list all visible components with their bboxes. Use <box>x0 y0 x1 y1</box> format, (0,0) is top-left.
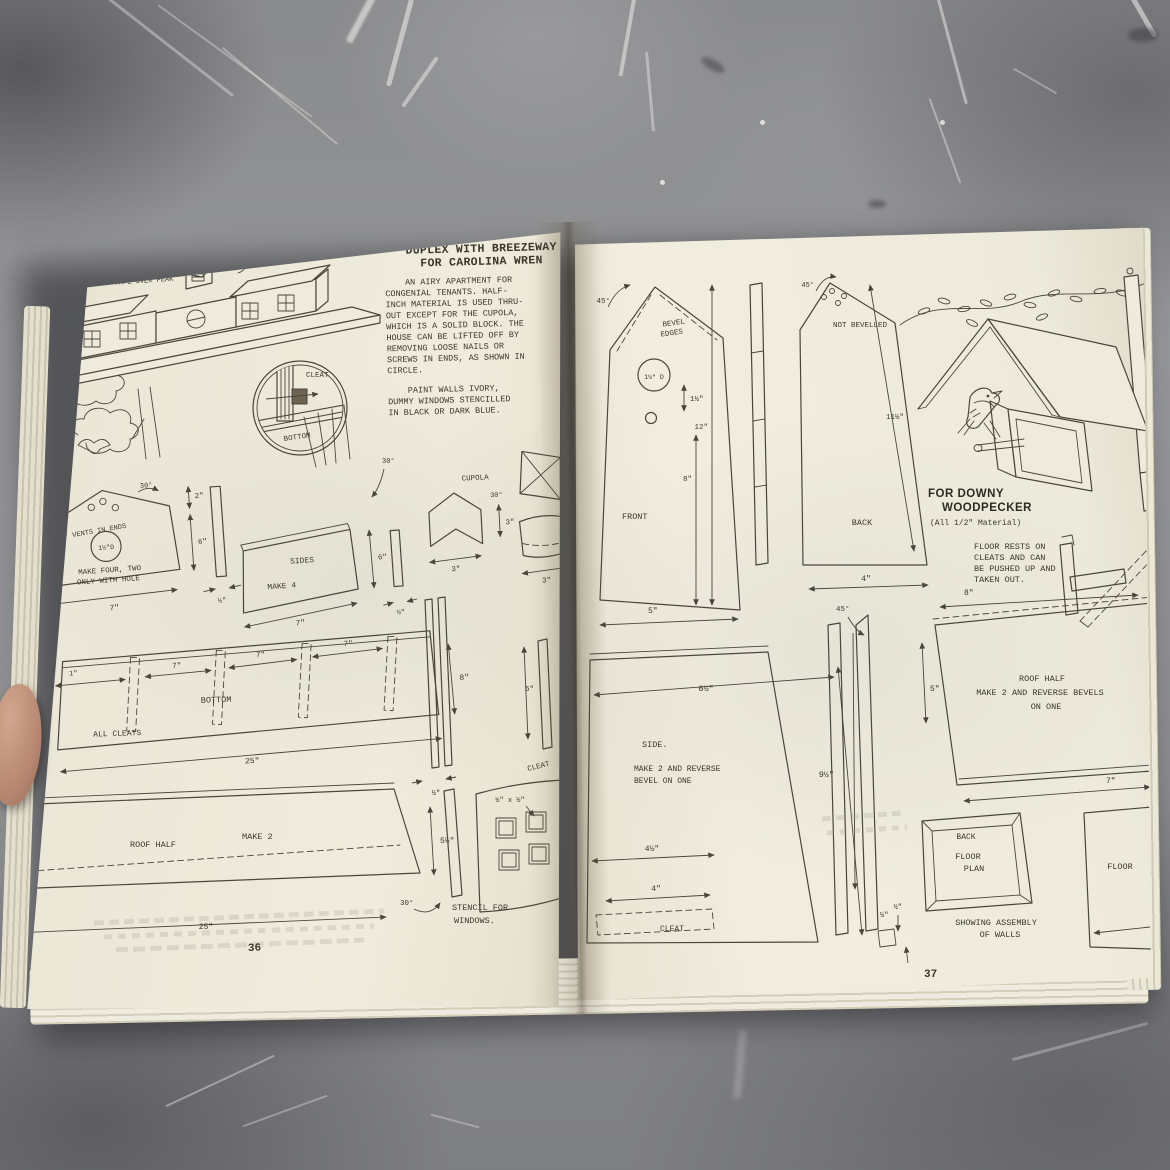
cupola-label: CUPOLA <box>462 474 490 483</box>
dim-length: 25" <box>245 757 260 766</box>
book-photo-scene: PAINT ROOF GREEN AFTER LAYING ADHESIVE T… <box>0 0 1170 1170</box>
dim-gap: ½" <box>880 911 888 920</box>
bevel-note: EDGES <box>660 328 684 339</box>
bottom-piece-plan: 1" 7" 7" 7" BOTTOM ALL CLEATS 8" 25" <box>54 630 472 773</box>
hole-diameter-label: 1½"D <box>98 543 114 552</box>
dim-roof-span: 8" <box>964 589 974 598</box>
article-title: FOR CAROLINA WREN <box>420 254 543 270</box>
floor-label: FLOOR <box>1107 862 1133 872</box>
end-piece-plan: ½" VENTS IN ENDS 1½"D MAKE FOUR, TWO ONL… <box>44 475 243 617</box>
dim-wall: ½" <box>894 903 902 912</box>
left-page-number: 36 <box>248 943 262 955</box>
assembly-caption: SHOWING ASSEMBLY <box>955 918 1037 928</box>
right-page-drawing: 45° BEVEL EDGES 1¼" D 1½" 12" 8" FRONT 5… <box>572 239 1152 994</box>
angle-label: 45° <box>596 297 610 306</box>
sides-piece-plan: SIDES MAKE 4 7" 6" ½" <box>238 519 419 632</box>
angle-label: 30° <box>140 481 153 491</box>
dim-gap: ½" <box>432 789 440 798</box>
floor-note-line: BE PUSHED UP AND <box>974 564 1056 574</box>
branch-leaves <box>918 288 1129 328</box>
plan-back-label: BACK <box>956 833 975 842</box>
assembly-caption: OF WALLS <box>980 930 1021 940</box>
dim-span: 7" <box>344 641 353 649</box>
floor-plan-diagram: BACK FLOOR PLAN <box>922 813 1032 911</box>
left-page-drawing: PAINT ROOF GREEN AFTER LAYING ADHESIVE T… <box>34 239 584 984</box>
dim-height: 6" <box>525 686 534 694</box>
intro-line: CIRCLE. <box>387 365 423 376</box>
roof-make: MAKE 2 <box>242 832 273 842</box>
floor-note: FLOOR RESTS ON CLEATS AND CAN BE PUSHED … <box>974 542 1056 585</box>
show-through-text <box>94 911 384 950</box>
left-page: PAINT ROOF GREEN AFTER LAYING ADHESIVE T… <box>20 225 580 1025</box>
sides-strip-angle: 30° <box>382 457 395 466</box>
dim-width: 3" <box>451 566 460 574</box>
dim-height: 11½" <box>886 413 904 422</box>
dim-width: 7" <box>109 604 119 614</box>
not-bevelled-note: NOT BEVELLED <box>833 322 888 330</box>
cleat-label: CLEAT <box>527 761 551 774</box>
roof-label: ON ONE <box>1031 702 1062 712</box>
dim-strip: ½" <box>396 608 405 618</box>
floor-note-line: TAKEN OUT. <box>974 575 1025 585</box>
dim-span: 7" <box>172 663 181 671</box>
dim-width: 5" <box>648 607 658 616</box>
dim-lower: 4" <box>651 885 661 894</box>
dim-height: 6" <box>378 554 388 563</box>
roof-label: ROOF HALF <box>1019 674 1065 684</box>
flying-bird <box>78 439 110 453</box>
dim-strip: ½" <box>218 596 227 606</box>
side-make: MAKE 2 AND REVERSE <box>634 765 721 774</box>
dim-width: 7" <box>295 619 305 629</box>
material-note: (All 1/2" Material) <box>930 519 1021 528</box>
woodpecker-house-illustration <box>900 268 1158 511</box>
show-through-text <box>822 813 907 833</box>
dim-end: 1" <box>69 670 78 678</box>
make-note: ONLY WITH HOLE <box>77 575 141 587</box>
angle-label: 45° <box>801 281 814 290</box>
woodpecker-heading: FOR DOWNY <box>928 488 1004 500</box>
side-label: SIDE. <box>642 740 668 750</box>
paint-note-line: IN BLACK OR DARK BLUE. <box>388 405 500 418</box>
article-text: DUPLEX WITH BREEZEWAY FOR CAROLINA WREN … <box>384 241 561 418</box>
angle-label: 30° <box>400 899 414 908</box>
dim-gap: 1½" <box>690 395 704 404</box>
floor-piece-plan: FLOOR <box>1084 807 1152 949</box>
bottom-label: BOTTOM <box>201 695 232 706</box>
right-page: 45° BEVEL EDGES 1¼" D 1½" 12" 8" FRONT 5… <box>560 215 1160 1015</box>
floor-note-line: CLEATS AND CAN <box>974 553 1045 563</box>
dim-depth: 3" <box>542 577 551 585</box>
cleats-note: ALL CLEATS <box>93 729 141 740</box>
dim-span: 7" <box>256 652 265 660</box>
sides-make: MAKE 4 <box>267 581 297 592</box>
angle-label: 45° <box>836 605 850 614</box>
back-piece-plan: 45° NOT BEVELLED 11½" BACK 4" <box>800 277 928 589</box>
bevel-strips: 45° ½" 5" <box>828 605 940 935</box>
side-make: BEVEL ON ONE <box>634 777 692 786</box>
angle-label: 30° <box>490 491 503 501</box>
dim-top: 2" <box>195 492 205 501</box>
inset-cleat-label: CLEAT <box>306 372 329 380</box>
woodpecker-heading: WOODPECKER <box>942 502 1032 514</box>
roof-half-plan-right: ROOF HALF MAKE 2 AND REVERSE BEVELS ON O… <box>933 597 1152 801</box>
dim-height: 3" <box>505 519 514 527</box>
hole-diameter-label: 1¼" D <box>644 374 664 381</box>
dim-height: 8" <box>459 673 469 682</box>
roof-label: MAKE 2 AND REVERSE BEVELS <box>976 688 1104 698</box>
side-piece-plan: 6½" SIDE. MAKE 2 AND REVERSE BEVEL ON ON… <box>587 646 862 943</box>
dim-top: 6½" <box>698 684 713 694</box>
cleat-assembly-sketch <box>1060 535 1154 627</box>
front-label: FRONT <box>622 512 648 522</box>
right-page-number: 37 <box>924 969 937 981</box>
plan-label: FLOOR <box>955 852 981 862</box>
plan-label: PLAN <box>964 864 984 874</box>
dim-side: 6" <box>198 538 208 547</box>
dim-width: 4" <box>861 575 871 584</box>
dim-total: 12" <box>694 424 708 432</box>
inset-bottom-label: BOTTOM <box>283 432 311 444</box>
front-piece-plan: 45° BEVEL EDGES 1¼" D 1½" 12" 8" FRONT 5… <box>596 283 768 625</box>
roof-label: ROOF HALF <box>130 840 176 850</box>
cleat-detail-inset: CLEAT BOTTOM <box>253 359 347 455</box>
dim-body: 8" <box>683 476 692 484</box>
pane-size-label: ½" x ½" <box>495 796 524 805</box>
floor-note-line: FLOOR RESTS ON <box>974 542 1045 552</box>
window-stencil: ½" x ½" STENCIL FOR WINDOWS. <box>452 780 568 926</box>
dim-strip: 5" <box>930 685 940 694</box>
back-label: BACK <box>852 518 873 528</box>
cleat-label: CLEAT <box>660 925 684 934</box>
stencil-caption: WINDOWS. <box>454 916 495 926</box>
dim-width: 7" <box>1106 777 1116 786</box>
sides-label: SIDES <box>290 556 315 567</box>
bevel-note: BEVEL <box>662 318 686 329</box>
dim-upper: 4½" <box>645 845 659 854</box>
cupola-plan: CUPOLA 3" 30° 3" 3" <box>424 449 571 591</box>
cleat-strips: ½" 6" CLEAT ½" <box>412 597 574 798</box>
roof-half-plan: ROOF HALF MAKE 2 5½" 25" 30° <box>12 783 462 933</box>
stencil-caption: STENCIL FOR <box>452 903 508 913</box>
